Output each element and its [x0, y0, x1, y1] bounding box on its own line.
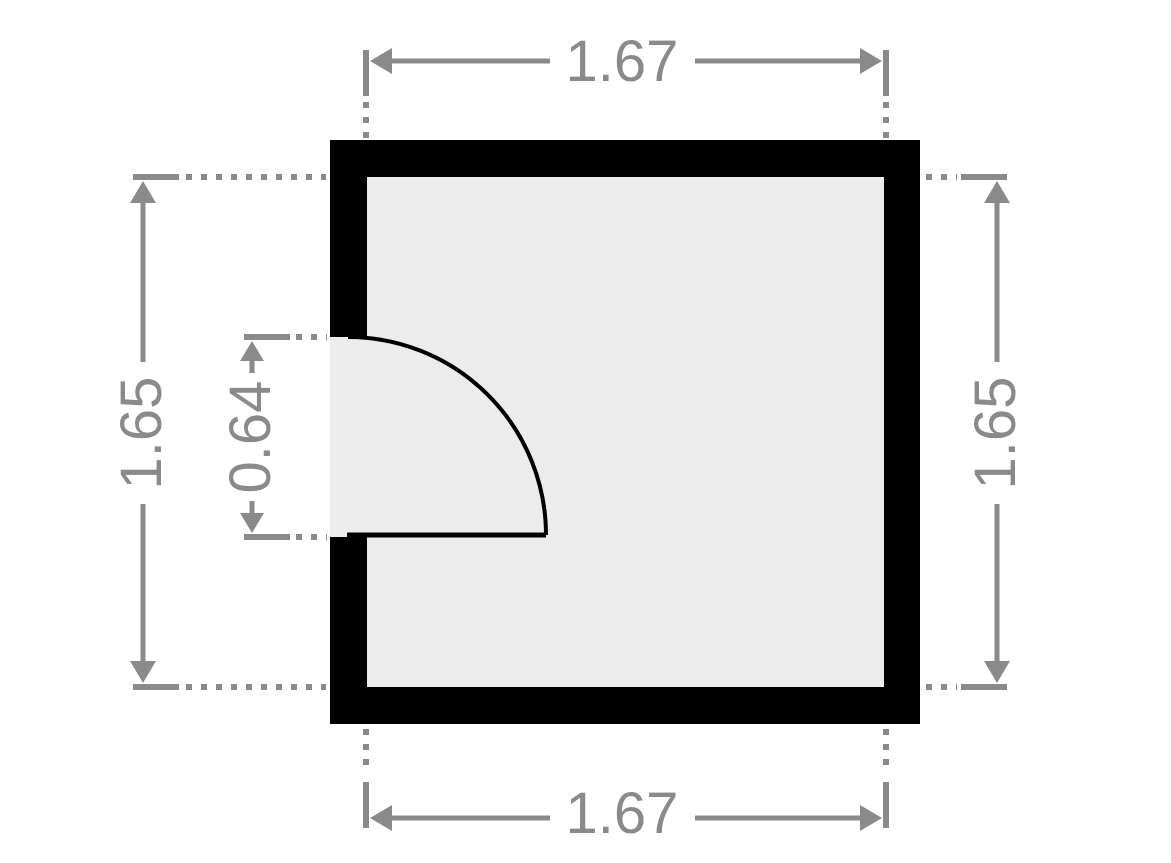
- arrow-left-icon: [370, 48, 392, 74]
- arrow-up-icon: [240, 341, 264, 361]
- dimension-top-width: 1.67: [366, 29, 886, 138]
- door-opening-gap: [330, 337, 367, 537]
- room-floor: [367, 177, 884, 687]
- arrow-up-icon: [130, 181, 156, 203]
- dimension-label-door: 0.64: [218, 381, 283, 494]
- arrow-up-icon: [984, 181, 1010, 203]
- dimension-label-top: 1.67: [566, 29, 679, 94]
- room: [330, 140, 920, 724]
- dimension-label-right: 1.65: [963, 377, 1028, 490]
- floor-plan-drawing: 1.67 1.67 1.65: [0, 0, 1171, 863]
- dimension-bottom-width: 1.67: [366, 729, 886, 846]
- dimension-label-bottom: 1.67: [566, 781, 679, 846]
- dimension-label-left: 1.65: [109, 377, 174, 490]
- dimension-door-opening: 0.64: [218, 337, 327, 537]
- arrow-down-icon: [984, 661, 1010, 683]
- arrow-down-icon: [130, 661, 156, 683]
- arrow-left-icon: [370, 805, 392, 831]
- floor-plan-canvas: 1.67 1.67 1.65: [0, 0, 1171, 863]
- arrow-right-icon: [860, 805, 882, 831]
- arrow-down-icon: [240, 513, 264, 533]
- dimension-right-height: 1.65: [926, 177, 1028, 687]
- arrow-right-icon: [860, 48, 882, 74]
